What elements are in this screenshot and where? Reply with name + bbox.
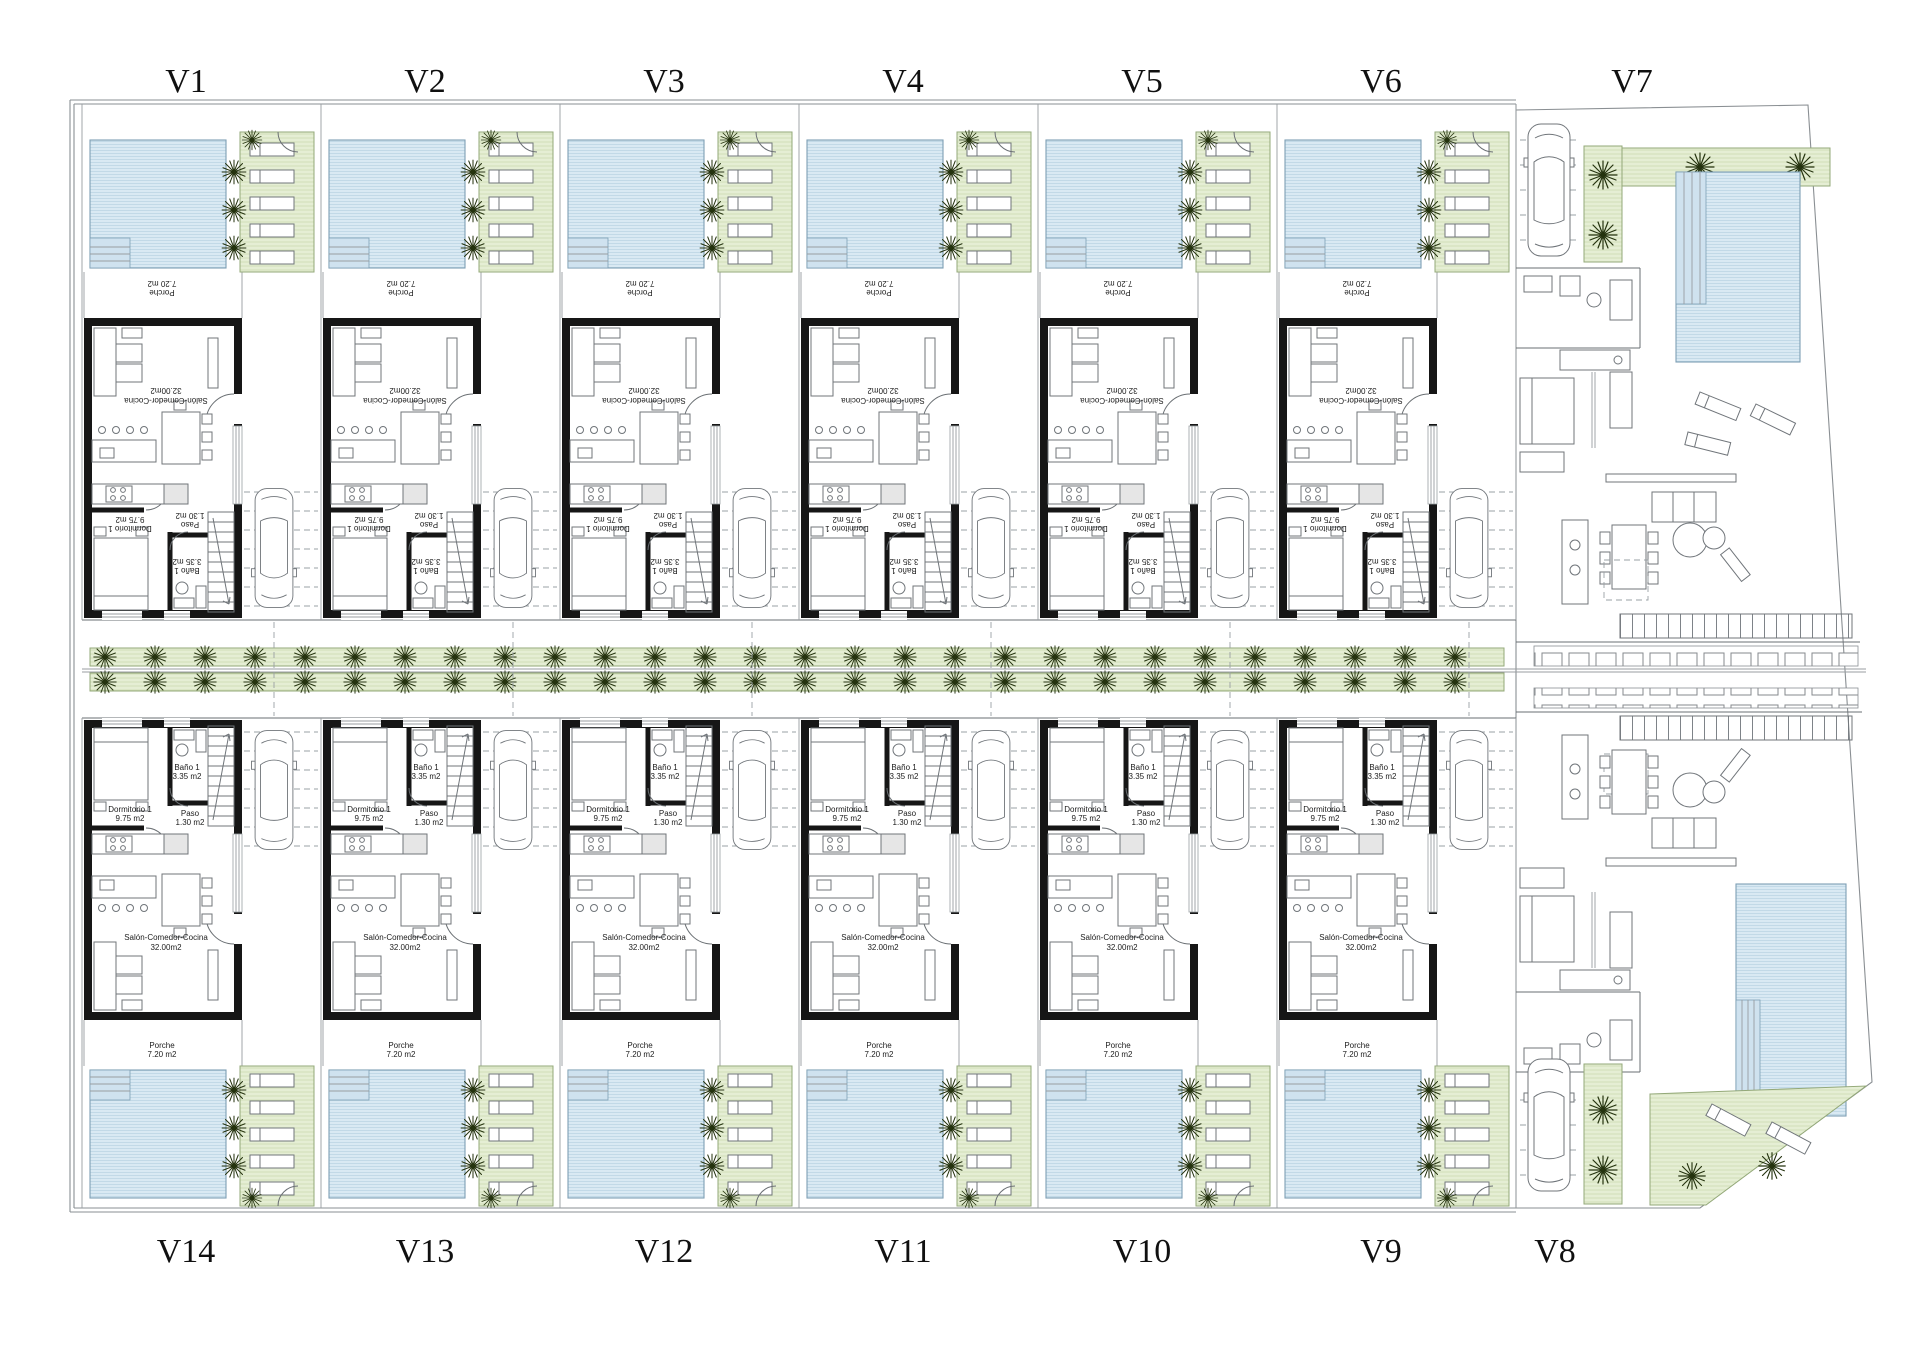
- sun-lounger-icon: [728, 1128, 772, 1141]
- palm-icon: [222, 198, 246, 222]
- room-label-salon: Salón-Comedor-Cocina: [1080, 396, 1164, 405]
- palm-icon: [344, 671, 366, 693]
- room-label-paso: Paso: [1137, 809, 1156, 818]
- bed: [811, 527, 865, 610]
- car-icon: [491, 489, 536, 608]
- sofa: [1652, 492, 1716, 522]
- palm-icon: [1194, 646, 1216, 668]
- palm-icon: [1144, 671, 1166, 693]
- room-label-bano: Baño 1: [652, 566, 678, 575]
- palm-icon: [1244, 671, 1266, 693]
- sun-lounger-icon: [1206, 170, 1250, 183]
- room-area-porche: 7.20 m2: [626, 1050, 655, 1059]
- car-icon: [252, 731, 297, 850]
- house: Dormitorio 1 9.75 m2 Baño 1 3.35 m2 Paso…: [562, 718, 720, 1020]
- porch: Porche 7.20 m2: [84, 1020, 242, 1066]
- entry-door-gap: [1428, 394, 1437, 424]
- pool-steps: [1285, 1070, 1325, 1100]
- sun-lounger-icon: [1206, 1074, 1250, 1087]
- pool-steps: [568, 1070, 608, 1100]
- palm-icon: [461, 236, 485, 260]
- bed: [333, 527, 387, 610]
- kitchen-counter: [809, 834, 905, 854]
- sun-lounger-icon: [1445, 1074, 1489, 1087]
- house: Dormitorio 1 9.75 m2 Baño 1 3.35 m2 Paso…: [1279, 318, 1437, 620]
- car-icon: [730, 489, 775, 608]
- room-area-salon: 32.00m2: [628, 386, 660, 395]
- driveway: [1429, 731, 1513, 850]
- room-area-salon: 32.00m2: [389, 943, 421, 952]
- bed: [94, 527, 148, 610]
- palm-icon: [1437, 130, 1457, 150]
- entry-door-gap: [950, 914, 959, 944]
- palm-icon: [944, 671, 966, 693]
- tv-bench: [208, 950, 218, 1000]
- palm-icon: [394, 671, 416, 693]
- tv-bench: [1164, 950, 1174, 1000]
- kitchen-counter: [1560, 350, 1630, 370]
- palm-icon: [1294, 646, 1316, 668]
- palm-icon: [461, 1154, 485, 1178]
- car-icon: [1447, 489, 1492, 608]
- sun-lounger-icon: [489, 1101, 533, 1114]
- room-label-salon: Salón-Comedor-Cocina: [1319, 933, 1403, 942]
- driveway: [1190, 731, 1274, 850]
- villa-plot: Dormitorio 1 9.75 m2 Baño 1 3.35 m2 Paso…: [1040, 130, 1274, 620]
- media-bench: [1606, 858, 1736, 866]
- room-area-bano: 3.35 m2: [1367, 557, 1396, 566]
- palm-icon: [1198, 130, 1218, 150]
- sun-lounger-icon: [250, 224, 294, 237]
- palm-icon: [1417, 1116, 1441, 1140]
- palm-icon: [959, 130, 979, 150]
- room-label-bano: Baño 1: [652, 763, 678, 772]
- stairs-icon: [1620, 614, 1852, 638]
- room-area-porche: 7.20 m2: [387, 1050, 416, 1059]
- palm-icon: [700, 1154, 724, 1178]
- villa-label-v11: V11: [874, 1233, 931, 1270]
- room-label-paso: Paso: [420, 809, 439, 818]
- palm-icon: [700, 1116, 724, 1140]
- porch: Porche 7.20 m2: [1040, 272, 1198, 318]
- sun-lounger-icon: [967, 224, 1011, 237]
- palm-icon: [1094, 646, 1116, 668]
- sun-lounger-icon: [1445, 170, 1489, 183]
- villa-label-v4: V4: [882, 63, 924, 100]
- side-glazing: [1428, 426, 1437, 504]
- room-area-dormitorio: 9.75 m2: [115, 515, 144, 524]
- room-label-porche: Porche: [627, 288, 653, 297]
- pool-steps: [807, 238, 847, 268]
- car-icon: [730, 731, 775, 850]
- palm-icon: [94, 646, 116, 668]
- site-plan-drawing: Dormitorio 1 9.75 m2 Baño 1 3.35 m2 Paso…: [0, 0, 1920, 1357]
- room-area-salon: 32.00m2: [150, 386, 182, 395]
- palm-icon: [1394, 671, 1416, 693]
- entry-door-gap: [1428, 914, 1437, 944]
- palm-icon: [544, 646, 566, 668]
- villa-label-v7: V7: [1611, 63, 1653, 100]
- palm-icon: [444, 646, 466, 668]
- sun-lounger-icon: [728, 170, 772, 183]
- bed: [1289, 527, 1343, 610]
- car-icon: [1447, 731, 1492, 850]
- pool-steps: [807, 1070, 847, 1100]
- large-villa-v7: [1516, 124, 1860, 666]
- room-area-salon: 32.00m2: [1345, 386, 1377, 395]
- room-label-dormitorio: Dormitorio 1: [825, 805, 869, 814]
- palm-icon: [959, 1188, 979, 1208]
- pool-steps: [568, 238, 608, 268]
- palm-icon: [794, 671, 816, 693]
- porch: Porche 7.20 m2: [1279, 272, 1437, 318]
- palm-icon: [594, 671, 616, 693]
- room-label-paso: Paso: [1136, 520, 1155, 529]
- room-area-porche: 7.20 m2: [864, 279, 893, 288]
- garden: [1285, 130, 1509, 272]
- entry-door-gap: [711, 914, 720, 944]
- porch: Porche 7.20 m2: [562, 1020, 720, 1066]
- palm-icon: [944, 646, 966, 668]
- entry-door-gap: [233, 914, 242, 944]
- side-glazing: [233, 426, 242, 504]
- palm-icon: [461, 1116, 485, 1140]
- palm-icon: [461, 198, 485, 222]
- sun-lounger-icon: [728, 1155, 772, 1168]
- palm-icon: [794, 646, 816, 668]
- driveway: [951, 489, 1035, 608]
- room-label-paso: Paso: [1376, 809, 1395, 818]
- villa-label-v14: V14: [157, 1233, 216, 1270]
- villa-label-v8: V8: [1534, 1233, 1576, 1270]
- palm-icon: [222, 1078, 246, 1102]
- sun-lounger-icon: [489, 1155, 533, 1168]
- palm-icon: [1178, 236, 1202, 260]
- palm-icon: [720, 1188, 740, 1208]
- room-label-bano: Baño 1: [1369, 566, 1395, 575]
- room-area-bano: 3.35 m2: [412, 772, 441, 781]
- sun-lounger-icon: [967, 251, 1011, 264]
- room-label-bano: Baño 1: [174, 763, 200, 772]
- palm-icon: [1417, 1154, 1441, 1178]
- palm-icon: [222, 1154, 246, 1178]
- entry-door-gap: [711, 394, 720, 424]
- villa-plot: Dormitorio 1 9.75 m2 Baño 1 3.35 m2 Paso…: [562, 130, 796, 620]
- room-label-bano: Baño 1: [413, 763, 439, 772]
- palm-icon: [844, 646, 866, 668]
- palm-icon: [242, 1188, 262, 1208]
- palm-icon: [294, 646, 316, 668]
- room-label-bano: Baño 1: [1130, 763, 1156, 772]
- kitchen-counter: [1287, 484, 1383, 504]
- driveway: [473, 489, 557, 608]
- room-label-salon: Salón-Comedor-Cocina: [124, 396, 208, 405]
- sun-lounger-icon: [1206, 224, 1250, 237]
- pool-steps: [90, 1070, 130, 1100]
- jacuzzi: [1673, 773, 1707, 807]
- entry-door-gap: [1189, 914, 1198, 944]
- palm-icon: [222, 160, 246, 184]
- bed: [811, 728, 865, 811]
- driveway: [234, 489, 318, 608]
- palm-icon: [694, 671, 716, 693]
- palm-icon: [1344, 646, 1366, 668]
- palm-icon: [1417, 198, 1441, 222]
- palm-icon: [1178, 1078, 1202, 1102]
- house: Dormitorio 1 9.75 m2 Baño 1 3.35 m2 Paso…: [1279, 718, 1437, 1020]
- car-icon: [1208, 489, 1253, 608]
- palm-icon: [894, 646, 916, 668]
- house: Dormitorio 1 9.75 m2 Baño 1 3.35 m2 Paso…: [323, 318, 481, 620]
- palm-icon: [1044, 646, 1066, 668]
- kitchen-counter: [331, 834, 427, 854]
- room-label-porche: Porche: [1105, 1041, 1131, 1050]
- kitchen-counter: [809, 484, 905, 504]
- room-label-paso: Paso: [181, 809, 200, 818]
- room-label-paso: Paso: [658, 520, 677, 529]
- room-label-bano: Baño 1: [174, 566, 200, 575]
- room-label-porche: Porche: [388, 288, 414, 297]
- palm-icon: [700, 236, 724, 260]
- villa-plot: Dormitorio 1 9.75 m2 Baño 1 3.35 m2 Paso…: [84, 718, 318, 1208]
- side-glazing: [1189, 834, 1198, 912]
- pool-steps: [1285, 238, 1325, 268]
- driveway: [1190, 489, 1274, 608]
- room-area-dormitorio: 9.75 m2: [1311, 814, 1340, 823]
- bed: [1520, 896, 1574, 962]
- room-label-dormitorio: Dormitorio 1: [586, 524, 630, 533]
- room-area-bano: 3.35 m2: [1368, 772, 1397, 781]
- deck-chair: [1721, 548, 1751, 582]
- room-area-paso: 1.30 m2: [176, 818, 205, 827]
- palm-icon: [644, 671, 666, 693]
- driveway: [1429, 489, 1513, 608]
- bed: [1050, 527, 1104, 610]
- villa-plot: Dormitorio 1 9.75 m2 Baño 1 3.35 m2 Paso…: [801, 130, 1035, 620]
- palm-icon: [94, 671, 116, 693]
- driveway: [473, 731, 557, 850]
- side-glazing: [1428, 834, 1437, 912]
- palm-icon: [1679, 1163, 1706, 1190]
- kitchen-island: [1562, 520, 1588, 604]
- appliance-column: [1610, 372, 1632, 428]
- palm-icon: [244, 671, 266, 693]
- deck-chair: [1721, 749, 1751, 783]
- room-label-porche: Porche: [388, 1041, 414, 1050]
- garden: [568, 130, 792, 272]
- room-area-salon: 32.00m2: [150, 943, 182, 952]
- porch: Porche 7.20 m2: [562, 272, 720, 318]
- garden: [1046, 1066, 1270, 1208]
- entry-door-gap: [472, 394, 481, 424]
- palm-icon: [1444, 671, 1466, 693]
- palm-icon: [1394, 646, 1416, 668]
- palm-icon: [939, 236, 963, 260]
- sun-lounger-icon: [1445, 197, 1489, 210]
- room-area-salon: 32.00m2: [1106, 386, 1138, 395]
- sun-lounger-icon: [250, 197, 294, 210]
- room-area-dormitorio: 9.75 m2: [1310, 515, 1339, 524]
- room-area-paso: 1.30 m2: [175, 511, 204, 520]
- dining-table: [1612, 525, 1646, 589]
- room-label-bano: Baño 1: [1130, 566, 1156, 575]
- house: Dormitorio 1 9.75 m2 Baño 1 3.35 m2 Paso…: [323, 718, 481, 1020]
- room-label-dormitorio: Dormitorio 1: [347, 805, 391, 814]
- villa-plot: Dormitorio 1 9.75 m2 Baño 1 3.35 m2 Paso…: [562, 718, 796, 1208]
- room-area-bano: 3.35 m2: [651, 772, 680, 781]
- palm-icon: [939, 160, 963, 184]
- stairs-icon: [1620, 716, 1852, 740]
- kitchen-counter: [570, 834, 666, 854]
- room-label-porche: Porche: [866, 288, 892, 297]
- room-area-dormitorio: 9.75 m2: [354, 515, 383, 524]
- tv-bench: [686, 950, 696, 1000]
- palm-icon: [544, 671, 566, 693]
- large-villa-v8: [1516, 688, 1866, 1205]
- entry-door-gap: [950, 394, 959, 424]
- palm-icon: [242, 130, 262, 150]
- palm-icon: [594, 646, 616, 668]
- side-glazing: [711, 426, 720, 504]
- room-label-paso: Paso: [1375, 520, 1394, 529]
- sun-lounger-icon: [489, 224, 533, 237]
- tv-bench: [1403, 950, 1413, 1000]
- entry-door-gap: [233, 394, 242, 424]
- villa-plot: Dormitorio 1 9.75 m2 Baño 1 3.35 m2 Paso…: [1040, 718, 1274, 1208]
- palm-icon: [994, 671, 1016, 693]
- side-glazing: [1189, 426, 1198, 504]
- room-area-porche: 7.20 m2: [147, 279, 176, 288]
- tv-bench: [208, 338, 218, 388]
- room-area-bano: 3.35 m2: [889, 557, 918, 566]
- room-label-salon: Salón-Comedor-Cocina: [1319, 396, 1403, 405]
- room-label-dormitorio: Dormitorio 1: [108, 524, 152, 533]
- palm-icon: [939, 198, 963, 222]
- pool-steps: [329, 1070, 369, 1100]
- room-area-paso: 1.30 m2: [414, 511, 443, 520]
- pool-steps: [1676, 172, 1706, 304]
- palm-icon: [1417, 160, 1441, 184]
- palm-icon: [1094, 671, 1116, 693]
- palm-icon: [1178, 1154, 1202, 1178]
- kitchen-counter: [1048, 484, 1144, 504]
- room-label-salon: Salón-Comedor-Cocina: [124, 933, 208, 942]
- room-area-bano: 3.35 m2: [1128, 557, 1157, 566]
- garden: [568, 1066, 792, 1208]
- villa-label-v9: V9: [1360, 1233, 1402, 1270]
- palm-icon: [939, 1078, 963, 1102]
- sun-lounger-icon: [489, 1074, 533, 1087]
- sun-lounger-icon: [250, 170, 294, 183]
- palm-icon: [1144, 646, 1166, 668]
- room-label-salon: Salón-Comedor-Cocina: [841, 396, 925, 405]
- villa-plot: Dormitorio 1 9.75 m2 Baño 1 3.35 m2 Paso…: [1279, 718, 1513, 1208]
- room-area-salon: 32.00m2: [1345, 943, 1377, 952]
- kitchen-counter: [1048, 834, 1144, 854]
- garden: [329, 130, 553, 272]
- room-area-porche: 7.20 m2: [865, 1050, 894, 1059]
- palm-icon: [1178, 1116, 1202, 1140]
- driveway: [234, 731, 318, 850]
- room-area-paso: 1.30 m2: [1132, 818, 1161, 827]
- room-label-porche: Porche: [1344, 1041, 1370, 1050]
- side-glazing: [472, 426, 481, 504]
- palm-icon: [194, 646, 216, 668]
- palm-icon: [1178, 160, 1202, 184]
- sun-lounger-icon: [1206, 1128, 1250, 1141]
- kitchen-counter: [570, 484, 666, 504]
- pool-steps: [1046, 238, 1086, 268]
- room-area-porche: 7.20 m2: [148, 1050, 177, 1059]
- villa-label-v6: V6: [1360, 63, 1402, 100]
- room-area-porche: 7.20 m2: [1343, 1050, 1372, 1059]
- car-icon: [1524, 1059, 1574, 1191]
- sun-lounger-icon: [728, 1101, 772, 1114]
- room-label-dormitorio: Dormitorio 1: [1064, 805, 1108, 814]
- room-label-bano: Baño 1: [1369, 763, 1395, 772]
- palm-icon: [644, 646, 666, 668]
- room-label-salon: Salón-Comedor-Cocina: [363, 396, 447, 405]
- room-area-porche: 7.20 m2: [1342, 279, 1371, 288]
- bed: [1520, 378, 1574, 444]
- kitchen-island: [1562, 735, 1588, 819]
- room-area-dormitorio: 9.75 m2: [593, 515, 622, 524]
- palm-icon: [744, 671, 766, 693]
- room-label-salon: Salón-Comedor-Cocina: [602, 933, 686, 942]
- car-icon: [252, 489, 297, 608]
- tv-bench: [1403, 338, 1413, 388]
- sun-lounger-icon: [967, 1128, 1011, 1141]
- driveway: [951, 731, 1035, 850]
- kitchen-counter: [92, 484, 188, 504]
- room-area-paso: 1.30 m2: [653, 511, 682, 520]
- room-area-paso: 1.30 m2: [415, 818, 444, 827]
- house: Dormitorio 1 9.75 m2 Baño 1 3.35 m2 Paso…: [84, 718, 242, 1020]
- room-area-paso: 1.30 m2: [893, 818, 922, 827]
- room-area-porche: 7.20 m2: [1103, 279, 1132, 288]
- garden: [1285, 1066, 1509, 1208]
- room-label-porche: Porche: [149, 288, 175, 297]
- porch: Porche 7.20 m2: [1279, 1020, 1437, 1066]
- sun-lounger-icon: [250, 251, 294, 264]
- villa-label-v3: V3: [643, 63, 685, 100]
- house: Dormitorio 1 9.75 m2 Baño 1 3.35 m2 Paso…: [84, 318, 242, 620]
- palm-icon: [1244, 646, 1266, 668]
- side-glazing: [950, 834, 959, 912]
- room-area-dormitorio: 9.75 m2: [116, 814, 145, 823]
- palm-icon: [1589, 1096, 1617, 1124]
- garden: [90, 1066, 314, 1208]
- appliance-column: [1610, 912, 1632, 968]
- room-label-paso: Paso: [659, 809, 678, 818]
- palm-icon: [700, 198, 724, 222]
- palm-icon: [1194, 671, 1216, 693]
- room-area-dormitorio: 9.75 m2: [832, 515, 861, 524]
- sun-lounger-icon: [1445, 1155, 1489, 1168]
- bed: [572, 527, 626, 610]
- jacuzzi: [1673, 523, 1707, 557]
- room-label-dormitorio: Dormitorio 1: [347, 524, 391, 533]
- bed: [94, 728, 148, 811]
- room-area-bano: 3.35 m2: [890, 772, 919, 781]
- room-area-porche: 7.20 m2: [625, 279, 654, 288]
- villa-plot: Dormitorio 1 9.75 m2 Baño 1 3.35 m2 Paso…: [1279, 130, 1513, 620]
- pool-steps: [1046, 1070, 1086, 1100]
- entry-door-gap: [472, 914, 481, 944]
- room-label-dormitorio: Dormitorio 1: [1303, 805, 1347, 814]
- room-area-dormitorio: 9.75 m2: [1072, 814, 1101, 823]
- car-icon: [969, 731, 1014, 850]
